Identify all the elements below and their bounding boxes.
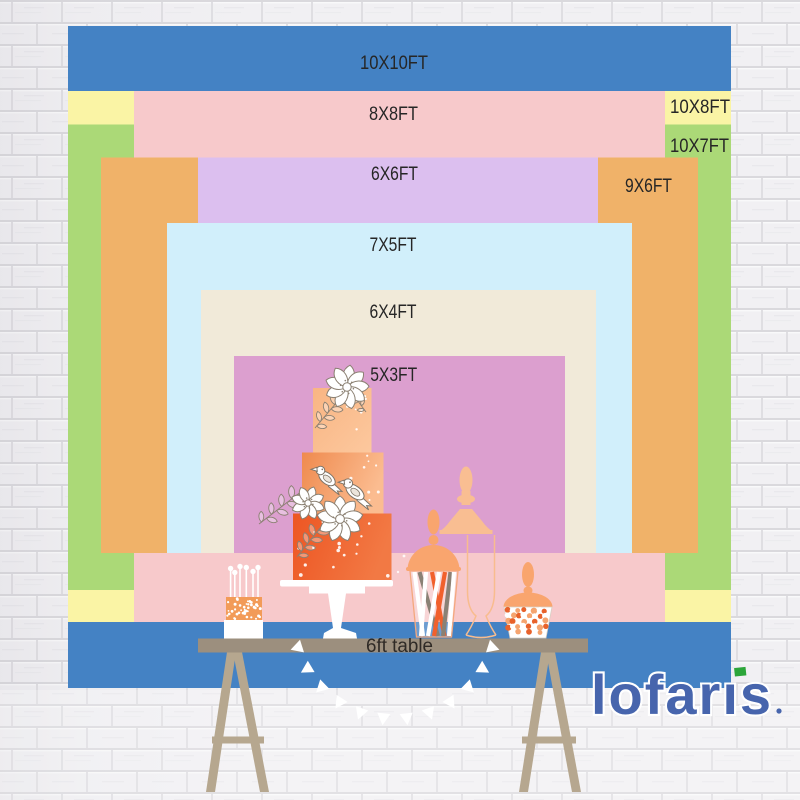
svg-text:6ft table: 6ft table: [366, 636, 433, 657]
svg-text:10X10FT: 10X10FT: [360, 53, 428, 74]
svg-text:6X4FT: 6X4FT: [370, 302, 417, 323]
svg-text:5X3FT: 5X3FT: [370, 365, 417, 386]
svg-text:8X8FT: 8X8FT: [369, 104, 418, 125]
svg-text:10X8FT: 10X8FT: [670, 97, 730, 118]
svg-text:9X6FT: 9X6FT: [625, 176, 672, 197]
svg-text:10X7FT: 10X7FT: [670, 136, 729, 157]
svg-text:6X6FT: 6X6FT: [371, 164, 418, 185]
svg-text:7X5FT: 7X5FT: [370, 235, 417, 256]
